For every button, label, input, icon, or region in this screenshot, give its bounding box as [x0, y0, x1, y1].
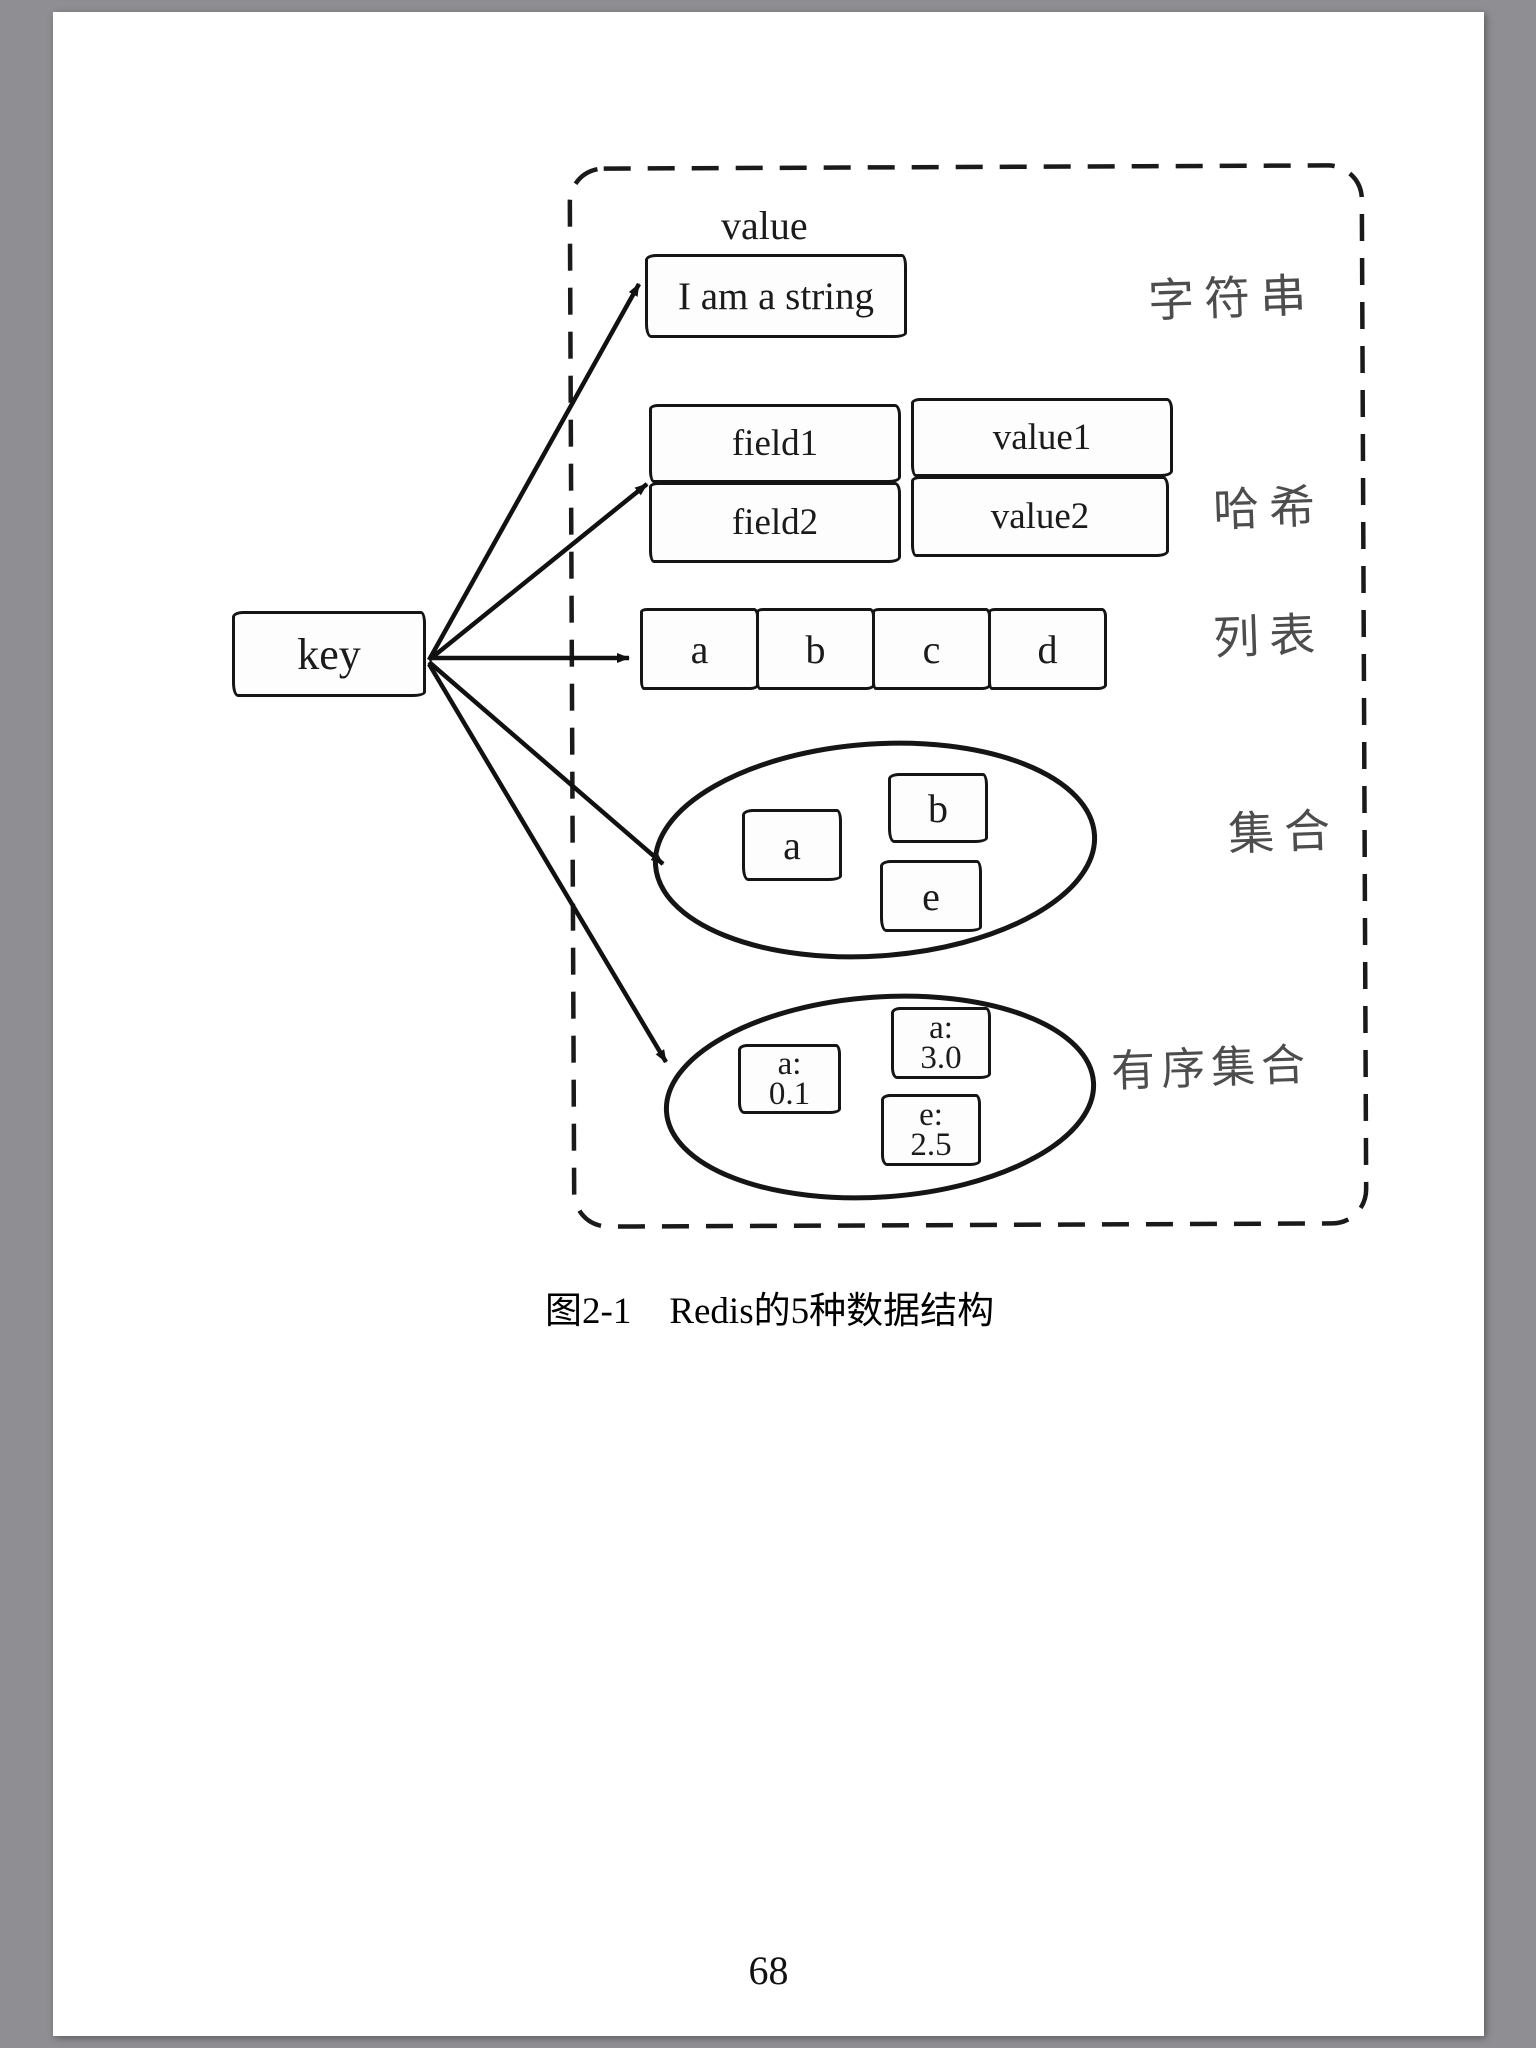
hash-field2-cell: field2	[649, 482, 901, 563]
string-box: I am a string	[645, 254, 907, 338]
hash-field1: field1	[732, 422, 818, 465]
set-ellipse	[648, 729, 1102, 971]
arrow-key-to-string	[429, 284, 639, 660]
reader-frame: value key I am a string field1 value1 fi…	[0, 0, 1536, 2048]
book-page: value key I am a string field1 value1 fi…	[53, 12, 1484, 2036]
list-item-a: a	[691, 626, 709, 673]
set-member-b: b	[928, 785, 948, 832]
arrow-key-to-set	[429, 662, 663, 864]
category-label-list: 列表	[1212, 598, 1326, 668]
sorted-member-e25-box: e: 2.5	[881, 1094, 981, 1166]
sorted-member-a30-box: a: 3.0	[891, 1007, 991, 1079]
list-cell-a: a	[640, 608, 759, 690]
category-label-string: 字符串	[1147, 259, 1317, 331]
sorted-member-a01-score: 0.1	[769, 1079, 810, 1109]
hash-value1-cell: value1	[911, 398, 1173, 477]
sorted-member-e25-key: e:	[919, 1100, 943, 1130]
hash-row-1: field1 value1	[649, 404, 1173, 483]
hash-table: field1 value1 field2 value2	[649, 404, 1173, 563]
hash-value2-cell: value2	[911, 476, 1169, 557]
arrow-key-to-hash	[429, 484, 647, 660]
sorted-member-a01-box: a: 0.1	[738, 1044, 841, 1114]
value-column-label: value	[721, 202, 808, 249]
hash-field2: field2	[732, 501, 818, 544]
set-member-a: a	[783, 822, 801, 869]
page-number: 68	[53, 1947, 1484, 1994]
key-label: key	[297, 629, 361, 680]
list-row: a b c d	[640, 608, 1107, 690]
category-label-set: 集合	[1227, 794, 1341, 864]
sorted-member-a01-key: a:	[778, 1049, 802, 1079]
list-cell-b: b	[756, 608, 875, 690]
set-member-a-box: a	[742, 809, 842, 881]
figure-caption: 图2-1Redis的5种数据结构	[545, 1280, 994, 1334]
arrow-key-to-sorted-set	[429, 664, 666, 1062]
category-label-sorted-set: 有序集合	[1110, 1029, 1312, 1100]
sorted-member-e25-score: 2.5	[910, 1130, 951, 1160]
list-item-c: c	[923, 626, 941, 673]
hash-value2: value2	[991, 495, 1090, 538]
string-value: I am a string	[678, 274, 874, 319]
list-cell-d: d	[988, 608, 1107, 690]
set-member-e-box: e	[880, 860, 982, 932]
key-box: key	[232, 611, 426, 697]
list-item-b: b	[806, 626, 826, 673]
set-member-b-box: b	[888, 773, 988, 843]
figure-caption-title: Redis的5种数据结构	[669, 1291, 994, 1332]
set-member-e: e	[922, 873, 940, 920]
hash-row-2: field2 value2	[649, 482, 1173, 563]
hash-field1-cell: field1	[649, 404, 901, 483]
hash-value1: value1	[993, 416, 1092, 459]
category-label-hash: 哈希	[1212, 470, 1326, 540]
list-cell-c: c	[872, 608, 991, 690]
sorted-member-a30-key: a:	[929, 1013, 953, 1043]
figure-caption-label: 图2-1	[545, 1291, 631, 1332]
sorted-member-a30-score: 3.0	[920, 1043, 961, 1073]
list-item-d: d	[1038, 626, 1058, 673]
sorted-set-ellipse	[660, 982, 1101, 1211]
